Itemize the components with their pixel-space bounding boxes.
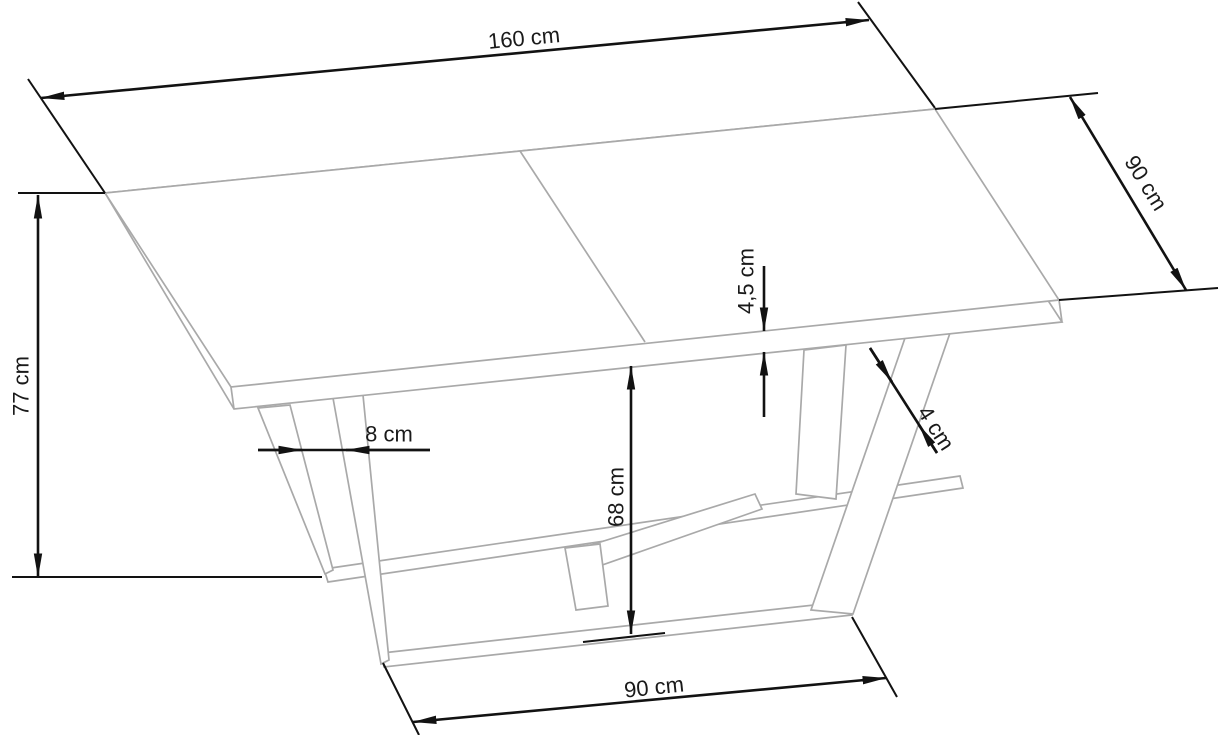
dim-label-top-thickness: 4,5 cm	[734, 248, 759, 314]
table-dimension-drawing: 160 cm 90 cm 77 cm 4,5 cm 4 cm 8	[0, 0, 1219, 735]
dimension-line-table-depth	[1070, 97, 1186, 290]
left-leg-rear-bar	[258, 405, 333, 574]
extension-line-depth-bottom	[1059, 288, 1218, 300]
extension-line-length-right	[858, 2, 935, 108]
dim-label-table-height: 77 cm	[9, 356, 34, 416]
dimension-line-table-length	[41, 20, 869, 98]
base-front-floor-bar	[382, 601, 852, 667]
right-leg-inner-bar	[796, 345, 846, 499]
technical-drawing-page: 160 cm 90 cm 77 cm 4,5 cm 4 cm 8	[0, 0, 1219, 735]
extension-line-base-left	[383, 663, 419, 735]
extension-line-base-right	[852, 617, 897, 697]
dim-label-leg-spacing: 8 cm	[365, 422, 413, 447]
dim-label-clearance: 68 cm	[604, 467, 629, 527]
dimension-arrow-leg-thickness-upper	[870, 348, 892, 382]
base-center-hub	[565, 544, 608, 610]
dim-label-table-depth: 90 cm	[1120, 151, 1173, 215]
